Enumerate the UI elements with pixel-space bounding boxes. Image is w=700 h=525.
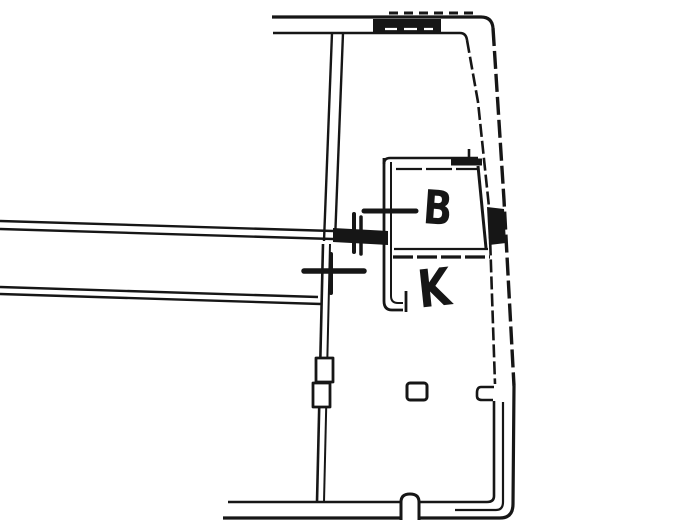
- top-wall-inner-line: [273, 33, 467, 40]
- room-label-k: K: [415, 257, 455, 320]
- spine-wall-box-lower: [313, 383, 330, 407]
- bottom-wall-column: [401, 494, 419, 520]
- spine-wall-upper-right-line: [335, 33, 343, 241]
- room-labels: B K: [415, 180, 455, 320]
- room-label-b: B: [421, 180, 454, 237]
- bottom-right-corner-middle-line: [455, 402, 503, 510]
- right-wall-step-tab: [477, 387, 494, 400]
- spine-wall-upper-left-line: [324, 33, 332, 241]
- right-window-block: [487, 207, 506, 245]
- spine-wall-box-upper: [316, 358, 333, 382]
- fixtures: [313, 358, 427, 520]
- hand-drawn-marks: [304, 211, 416, 293]
- corridor-walls: [0, 221, 333, 304]
- floor-plan-drawing: B K: [0, 0, 700, 525]
- room-b-left-wall-inner: [391, 162, 403, 303]
- interior-spine-wall: [317, 33, 388, 502]
- right-wall-slanted-outer-line: [493, 28, 514, 386]
- outer-walls: [223, 13, 514, 518]
- room-outlet-symbol: [407, 383, 427, 400]
- floor-plan-scan: B K: [0, 0, 700, 525]
- right-and-bottom-wall-outer-line: [223, 386, 514, 518]
- right-and-bottom-wall-inner-line: [228, 401, 494, 502]
